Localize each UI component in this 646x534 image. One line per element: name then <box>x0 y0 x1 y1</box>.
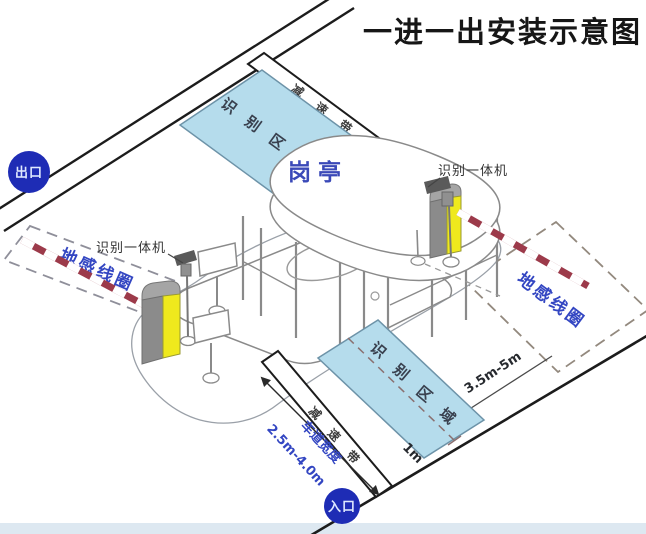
barrier-machine-left <box>142 281 180 364</box>
reader-right-label: 识别一体机 <box>438 164 508 179</box>
exit-badge: 出口 <box>8 151 50 193</box>
installation-diagram: 一进一出安装示意图 减 速 带 识 别 区 域 地感线圈 地感线圈 3.5m-5… <box>0 0 646 534</box>
reader-left-label: 识别一体机 <box>96 241 166 256</box>
booth-label: 岗亭 <box>288 159 348 186</box>
entrance-badge-label: 入口 <box>328 500 356 515</box>
barrier-machine-right-body <box>430 198 447 258</box>
diagram-canvas: 一进一出安装示意图 减 速 带 识 别 区 域 地感线圈 地感线圈 3.5m-5… <box>0 0 646 534</box>
camera-right-base <box>443 257 459 267</box>
camera-left-bracket <box>181 264 191 276</box>
entrance-badge: 入口 <box>324 488 360 524</box>
diagram-title: 一进一出安装示意图 <box>363 15 642 49</box>
aux-pole-right-base <box>411 257 425 266</box>
booth-door-knob <box>371 292 379 300</box>
sign-board-lower-base <box>203 373 219 383</box>
camera-right-bracket <box>442 192 453 206</box>
exit-badge-label: 出口 <box>15 165 43 181</box>
dimension-coil-text: 3.5m-5m <box>462 349 524 397</box>
barrier-machine-left-panel <box>163 294 180 358</box>
barrier-machine-left-body <box>142 296 163 364</box>
camera-left-base <box>181 337 196 346</box>
aux-pole-right <box>417 230 418 258</box>
camera-left-pole <box>187 276 188 338</box>
